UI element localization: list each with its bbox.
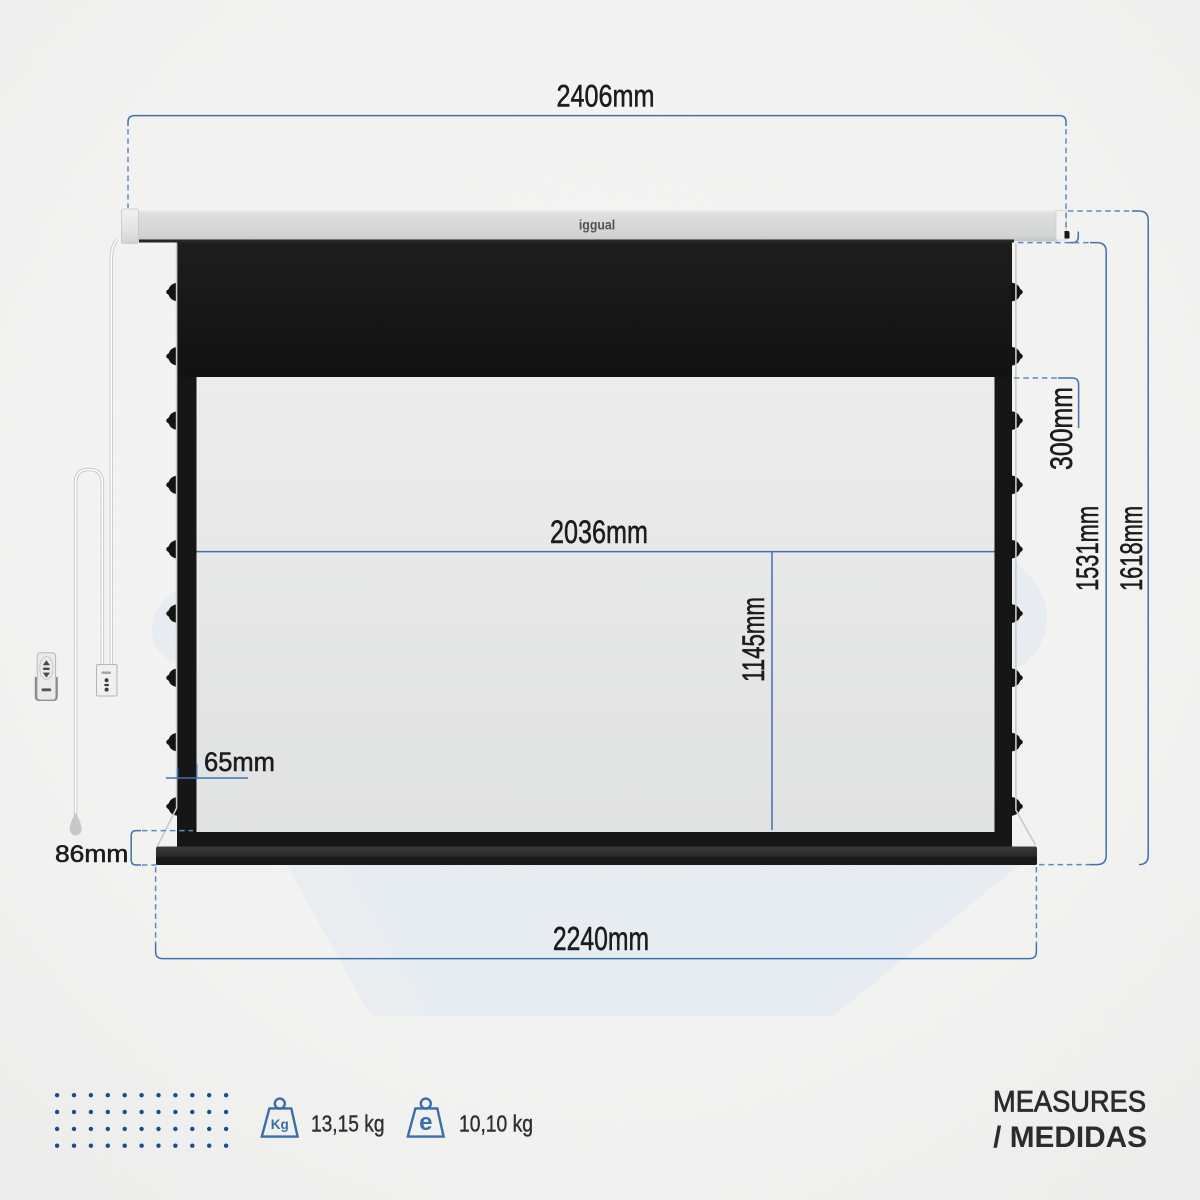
svg-text:1531mm: 1531mm (1069, 506, 1105, 591)
svg-text:1618mm: 1618mm (1113, 506, 1149, 591)
svg-text:10,10 kg: 10,10 kg (459, 1112, 533, 1137)
svg-text:300mm: 300mm (1044, 387, 1080, 470)
svg-text:1145mm: 1145mm (735, 597, 771, 682)
svg-text:2406mm: 2406mm (556, 79, 654, 114)
svg-text:86mm: 86mm (55, 841, 128, 868)
svg-text:MEASURES: MEASURES (993, 1085, 1146, 1118)
svg-text:Kg: Kg (271, 1117, 289, 1132)
svg-text:/ MEDIDAS: / MEDIDAS (993, 1121, 1147, 1154)
svg-text:2036mm: 2036mm (550, 515, 648, 551)
svg-text:2240mm: 2240mm (553, 922, 649, 958)
svg-text:e: e (419, 1109, 432, 1136)
svg-text:65mm: 65mm (204, 746, 275, 777)
svg-text:iggual: iggual (579, 217, 615, 233)
svg-text:13,15 kg: 13,15 kg (311, 1112, 384, 1137)
